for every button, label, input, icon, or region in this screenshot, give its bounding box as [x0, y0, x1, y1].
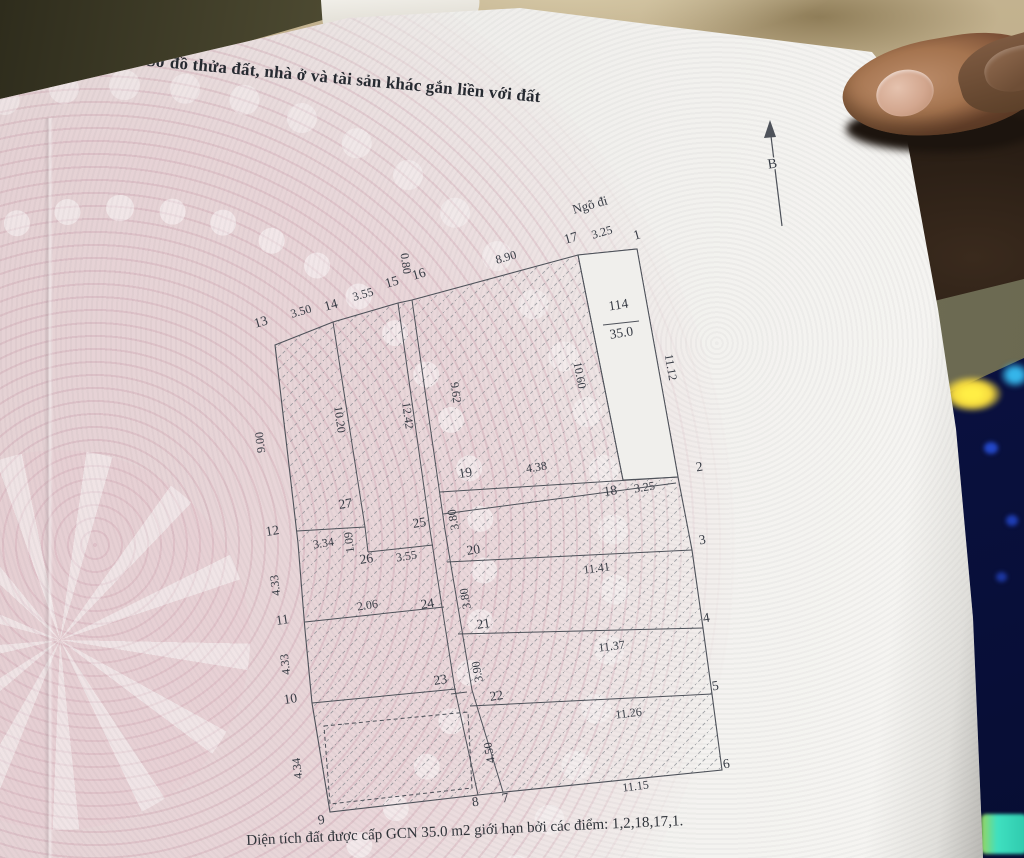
point-label: 114 [607, 296, 629, 314]
point-label: 2 [695, 459, 704, 475]
point-label: 18 [602, 482, 618, 499]
dimension-label: 4.34 [289, 757, 305, 780]
dimension-label: 9.00 [252, 431, 268, 454]
dimension-label: 1.09 [341, 531, 357, 554]
point-label: 22 [488, 687, 504, 704]
point-label: 14 [322, 296, 339, 314]
point-label: 17 [562, 229, 579, 247]
monitor-light-dot [1006, 515, 1018, 526]
monitor-cyan-glow [1000, 362, 1024, 388]
dimension-label: 3.55 [351, 285, 375, 304]
north-arrow-shaft [770, 128, 782, 226]
point-label: 27 [337, 495, 353, 512]
point-label: 6 [722, 756, 731, 772]
point-label: 5 [711, 678, 720, 694]
dimension-label: 3.50 [289, 302, 313, 321]
parcel-boundary [275, 249, 722, 812]
photo-of-land-certificate: III. Sơ đồ thửa đất, nhà ở và tài sản kh… [0, 0, 1024, 858]
dimension-label: 11.15 [621, 777, 649, 794]
dimension-label: 9.62 [448, 381, 465, 404]
point-label: 3 [698, 532, 707, 548]
point-label: 12 [264, 522, 280, 539]
dimension-label: 4.33 [277, 653, 293, 676]
dimension-label: 4.33 [267, 574, 283, 597]
point-label: 26 [358, 550, 374, 567]
point-label: 16 [410, 265, 427, 283]
dimension-label: 11.12 [662, 353, 680, 382]
point-label: 11 [275, 611, 290, 628]
point-label: 15 [383, 273, 400, 291]
point-label: 23 [432, 671, 448, 688]
point-label: 8 [471, 794, 480, 810]
point-label: 1 [631, 227, 642, 243]
north-label: B [767, 156, 779, 172]
point-label: 19 [457, 464, 473, 481]
point-label: 20 [465, 541, 481, 558]
point-label: 4 [702, 610, 711, 626]
dimension-label: 8.90 [494, 248, 518, 267]
point-label: 21 [475, 615, 491, 632]
point-label: 9 [317, 812, 326, 828]
north-arrow-head [764, 120, 776, 138]
point-label: 24 [419, 595, 435, 612]
text-label: Ngõ đi [571, 192, 610, 216]
dimension-label: 3.25 [590, 223, 614, 242]
point-label: 10 [282, 690, 298, 707]
point-label: 13 [252, 313, 269, 331]
monitor-teal-bar [981, 814, 1024, 854]
monitor-light-dot [984, 442, 998, 454]
point-label: 25 [411, 514, 427, 531]
monitor-light-dot [996, 572, 1007, 582]
